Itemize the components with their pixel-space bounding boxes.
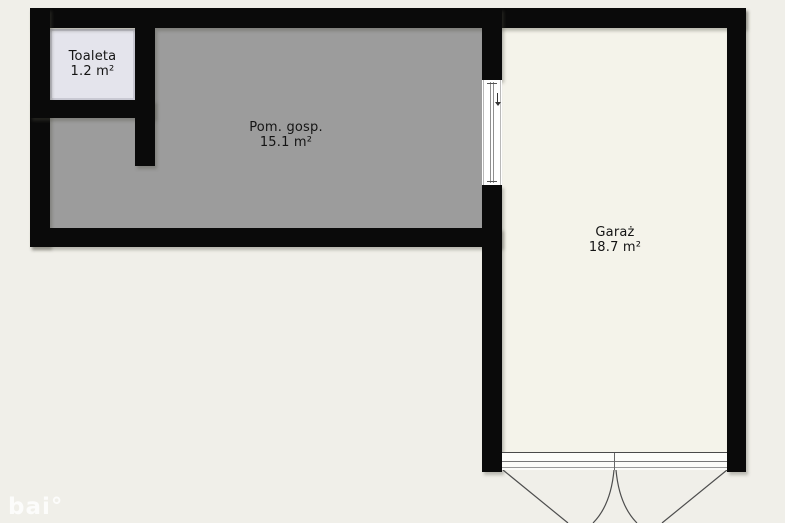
room-area: 1.2 m² xyxy=(40,64,145,79)
room-name: Garaż xyxy=(515,225,715,240)
room-label-toaleta: Toaleta 1.2 m² xyxy=(40,49,145,79)
window-pane-line xyxy=(490,82,491,183)
wall-left xyxy=(30,8,50,247)
room-label-pom-gosp: Pom. gosp. 15.1 m² xyxy=(186,120,386,150)
garage-door-divider xyxy=(614,453,615,470)
window-edge-line xyxy=(483,80,484,185)
wall-garage-right xyxy=(727,8,746,472)
wall-garage-left-lower xyxy=(482,185,502,472)
window-end-tick xyxy=(487,181,497,182)
wall-top xyxy=(30,8,746,28)
room-label-garaz: Garaż 18.7 m² xyxy=(515,225,715,255)
room-area: 15.1 m² xyxy=(186,135,386,150)
door-direction-arrow-icon xyxy=(497,93,498,103)
room-name: Toaleta xyxy=(40,49,145,64)
window-symbol xyxy=(482,80,502,185)
window-end-tick xyxy=(487,83,497,84)
room-area: 18.7 m² xyxy=(515,240,715,255)
wall-garage-left-upper xyxy=(482,8,502,80)
wall-bottom-left-section xyxy=(30,228,502,247)
window-pane-line xyxy=(493,82,494,183)
watermark-logo: bai° xyxy=(8,494,63,520)
room-name: Pom. gosp. xyxy=(186,120,386,135)
garage-door-swing-lines xyxy=(480,470,750,523)
garage-door-sill xyxy=(502,452,727,470)
floor-plan-canvas: Toaleta 1.2 m² Pom. gosp. 15.1 m² Garaż … xyxy=(0,0,785,523)
window-edge-line xyxy=(500,80,501,185)
